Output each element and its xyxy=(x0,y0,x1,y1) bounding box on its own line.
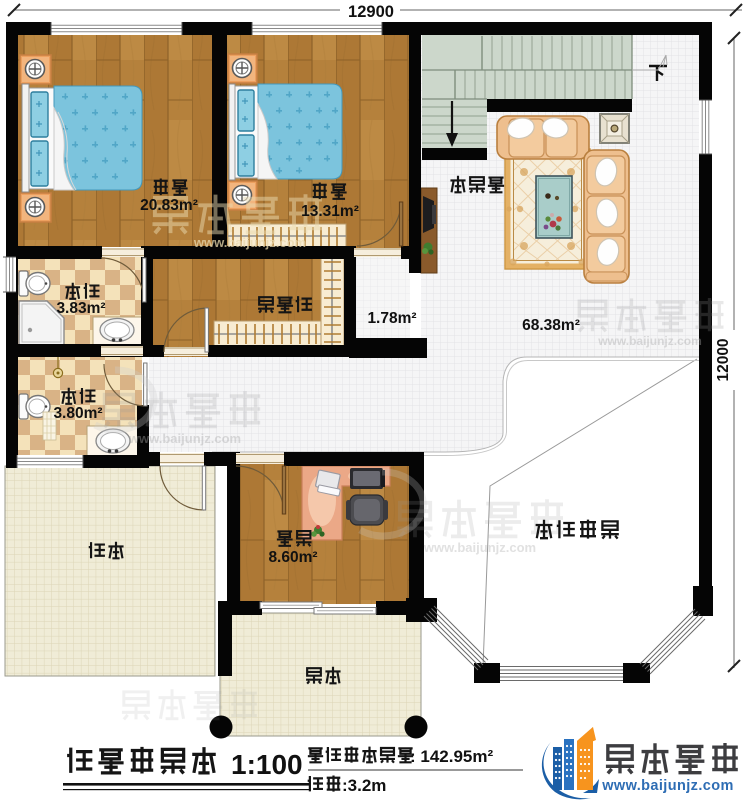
svg-text:1.78m²: 1.78m² xyxy=(367,310,416,327)
svg-text:www.baijunjz.com: www.baijunjz.com xyxy=(128,431,241,446)
svg-text::3.2m: :3.2m xyxy=(342,776,386,795)
svg-text:www.baijunjz.com: www.baijunjz.com xyxy=(601,778,734,794)
svg-text:8.60m²: 8.60m² xyxy=(268,549,317,566)
svg-text:13.31m²: 13.31m² xyxy=(301,203,359,220)
svg-text:68.38m²: 68.38m² xyxy=(522,317,580,334)
svg-text:3.80m²: 3.80m² xyxy=(53,405,102,422)
svg-text:12000: 12000 xyxy=(715,338,732,381)
svg-text:3.83m²: 3.83m² xyxy=(56,300,105,317)
svg-text:www.baijunjz.com: www.baijunjz.com xyxy=(597,334,702,348)
svg-text:: 142.95m²: : 142.95m² xyxy=(410,747,493,766)
svg-text:1:100: 1:100 xyxy=(231,749,303,780)
svg-text:www.baijunjz.com: www.baijunjz.com xyxy=(193,235,306,250)
svg-text:20.83m²: 20.83m² xyxy=(140,197,198,214)
svg-text:12900: 12900 xyxy=(348,3,394,21)
svg-text:www.baijunjz.com: www.baijunjz.com xyxy=(423,540,536,555)
